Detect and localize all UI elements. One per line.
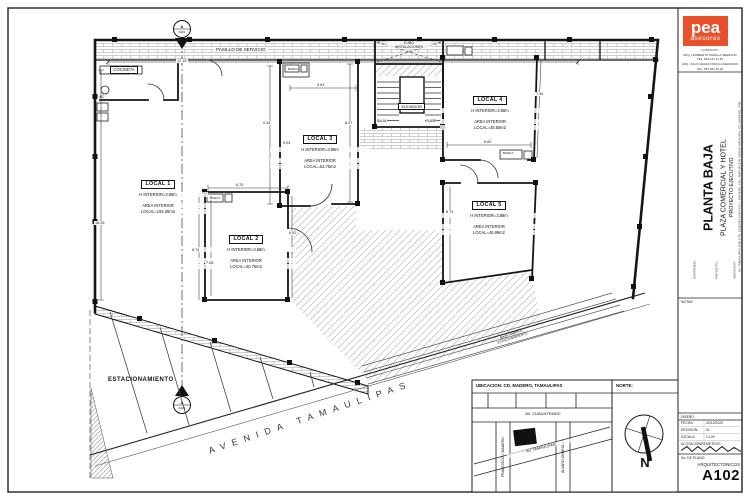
estacionamiento-label: ESTACIONAMIENTO xyxy=(108,377,174,384)
banca-label-2: BANCA xyxy=(210,197,220,200)
section-marker-bottom-letter: A xyxy=(173,400,191,405)
linework-svg xyxy=(0,0,750,500)
local-3-height: H INTERIOR=3.88m xyxy=(270,147,370,152)
acotaciones-label: ACOTACIONES: xyxy=(681,442,706,446)
local-3-label: LOCAL 3 H INTERIOR=3.88m AREA INTERIOR L… xyxy=(270,127,370,169)
logo: pea asesores xyxy=(683,16,728,46)
escala-value: 1:125 xyxy=(706,435,715,439)
dim-total-width: 12.18 xyxy=(176,59,188,63)
dim-local2-right: 6.52 xyxy=(288,231,297,235)
contact-line-5: TEL. 833 831 48 84 xyxy=(680,67,740,72)
local-1-height: H INTERIOR=3.88m xyxy=(108,192,208,197)
proyecto-label: PROYECTO: xyxy=(714,245,720,295)
contenido-label: CONTENIDO: xyxy=(692,245,698,295)
local-4-area-1: AREA INTERIOR xyxy=(440,119,540,124)
section-marker-top-letter: A xyxy=(173,24,191,29)
revision-label: REVISION: xyxy=(681,428,698,432)
site-marker xyxy=(513,428,537,447)
acotaciones-value: METROS xyxy=(706,442,721,446)
cubo-line2: INSTALACIONES xyxy=(387,45,431,49)
dim-local4-bottom: 6.60 xyxy=(483,140,492,144)
elevador-label: ELEVADOR xyxy=(398,103,425,110)
section-marker-bottom-sheet: A301 xyxy=(173,406,191,410)
local-2-name: LOCAL 2 xyxy=(229,235,262,244)
north-letter: N xyxy=(636,456,654,471)
local-3-area-2: LOCAL=52.76m2 xyxy=(270,164,370,169)
logo-tagline: asesores xyxy=(690,35,720,42)
local-1-name: LOCAL 1 xyxy=(141,180,174,189)
dim-local2-inner: 7.08 xyxy=(205,261,214,265)
section-marker-top-sheet: A301 xyxy=(173,30,191,34)
local-2-height: H INTERIOR=3.88m xyxy=(196,247,296,252)
local-4-height: H INTERIOR=3.88m xyxy=(440,108,540,113)
local-5-name: LOCAL 5 xyxy=(472,201,505,210)
local-1-label: LOCAL 1 H INTERIOR=3.88m AREA INTERIOR L… xyxy=(108,172,208,214)
fecha-value: 22/12/2022 xyxy=(706,421,723,425)
escala-label: ESCALA: xyxy=(681,435,695,439)
logo-contact: CONTACTO: ARQ. HUMBERTO PADILLA SERRANO … xyxy=(680,48,740,71)
banca-label-1: BANCA xyxy=(288,68,298,71)
local-4-area-2: LOCAL=48.55m2 xyxy=(440,125,540,130)
location-panel-title: UBICACION: CD. MADERO, TAMAULIPAS xyxy=(476,383,562,388)
drawing-sheet: PASILLO DE SERVICIO COCINETA WC BANCA BA… xyxy=(0,0,750,500)
dim-local3-left: 9.04 xyxy=(282,141,291,145)
notas-label: NOTAS: xyxy=(681,300,693,304)
cocineta-label: COCINETA xyxy=(110,66,138,74)
map-street-cuauhtemoc: AV. CUAUHTEMOC xyxy=(505,412,581,417)
local-1-area-2: LOCAL=194.39m2 xyxy=(108,209,208,214)
wc-label: WC xyxy=(99,96,104,100)
ubicacion-label: UBICACION: xyxy=(732,245,738,295)
local-3-name: LOCAL 3 xyxy=(303,135,336,144)
fecha-label: FECHA: xyxy=(681,421,693,425)
contact-line-4: ARQ. JULIO CESAR PADILLA SERRANO xyxy=(680,62,740,67)
baja-label: BAJA xyxy=(377,119,387,123)
local-4-name: LOCAL 4 xyxy=(473,96,506,105)
local-1-area-1: AREA INTERIOR xyxy=(108,203,208,208)
logo-name: pea xyxy=(691,20,720,35)
sheet-number: A102 xyxy=(680,467,740,484)
dim-local5-left: 8.74 xyxy=(445,210,454,214)
dim-left-height: 18.26 xyxy=(94,221,106,225)
corridor-label: PASILLO DE SERVICIO xyxy=(214,47,268,52)
local-5-area-2: LOCAL=46.99m2 xyxy=(439,230,539,235)
map-street-obregon: ALVARO OBREGON xyxy=(557,424,569,490)
dim-local3-h-right: 8.47 xyxy=(344,121,353,125)
dim-local3-h-left: 9.34 xyxy=(262,121,271,125)
local-5-area-1: AREA INTERIOR xyxy=(439,224,539,229)
revision-value: 01 xyxy=(706,428,710,432)
dim-local4-right: 7.46 xyxy=(535,92,544,96)
dim-local2-top: 6.70 xyxy=(235,183,244,187)
local-4-label: LOCAL 4 H INTERIOR=3.88m AREA INTERIOR L… xyxy=(440,88,540,130)
diseno-label: DISEÑO: xyxy=(681,415,695,419)
sube-label: SUBE xyxy=(426,119,436,123)
dim-local2-left: 8.74 xyxy=(191,248,200,252)
local-3-area-1: AREA INTERIOR xyxy=(270,158,370,163)
banca-label-3: BANCA xyxy=(503,152,513,155)
cubo-label: CUBO INSTALACIONES xyxy=(387,41,431,49)
norte-label: NORTE: xyxy=(616,383,633,388)
dim-local3-top: 5.63 xyxy=(316,83,325,87)
plano-label: No. DE PLANO: xyxy=(681,456,705,460)
